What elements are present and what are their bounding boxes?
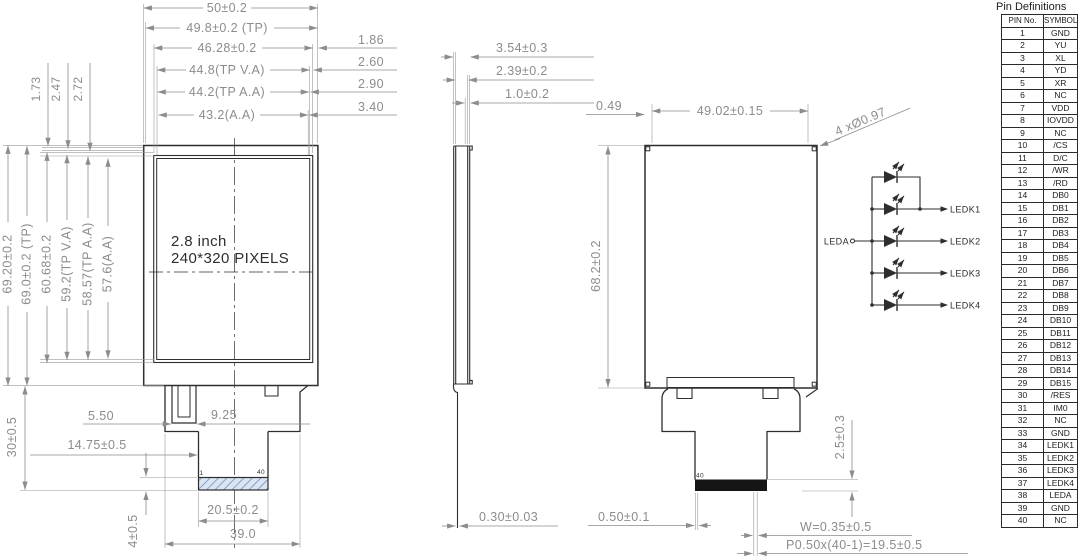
dim-tp-aa-height: 58.57(TP A.A) xyxy=(81,222,95,305)
table-row: 11D/C xyxy=(1002,152,1078,165)
back-pin40-marker: 40 xyxy=(696,473,704,480)
dim-contact-exposed: 2.5±0.3 xyxy=(833,415,847,459)
dim-top-thickness: 1.0±0.2 xyxy=(505,87,549,101)
front-dims-top: 50±0.2 49.8±0.2 (TP) 46.28±0.2 44.8(TP V… xyxy=(144,1,397,155)
dim-slot: 5.50 xyxy=(88,409,114,423)
table-row: 36LEDK3 xyxy=(1002,465,1078,478)
table-row: 22DB8 xyxy=(1002,290,1078,303)
table-row: 3XL xyxy=(1002,52,1078,65)
table-row: 12/WR xyxy=(1002,165,1078,178)
dim-back-height: 68.2±0.2 xyxy=(589,240,603,292)
table-row: 26DB12 xyxy=(1002,340,1078,353)
dim-tab: 9.25 xyxy=(211,408,237,422)
led-row-k3: LEDK3 xyxy=(872,258,981,279)
dim-tp-width: 49.8±0.2 (TP) xyxy=(186,21,268,35)
dim-contact-height: 4±0.5 xyxy=(126,514,140,547)
dim-small-247: 2.47 xyxy=(49,77,63,102)
table-row: 13/RD xyxy=(1002,177,1078,190)
pin-table-header-row: PIN No. SYMBOL xyxy=(1002,15,1078,28)
table-row: 6NC xyxy=(1002,90,1078,103)
table-row: 9NC xyxy=(1002,127,1078,140)
fpc-notch xyxy=(265,386,278,397)
table-row: 29DB15 xyxy=(1002,377,1078,390)
table-row: 19DB5 xyxy=(1002,252,1078,265)
screen-size-label: 2.8 inch xyxy=(171,233,227,250)
table-row: 37LEDK4 xyxy=(1002,477,1078,490)
side-fpc-line xyxy=(453,384,457,528)
leda-label: LEDA xyxy=(824,237,849,247)
table-row: 10/CS xyxy=(1002,140,1078,153)
dim-mid-thickness: 2.39±0.2 xyxy=(496,64,548,78)
symbol-header: SYMBOL xyxy=(1044,15,1078,28)
pin40-marker: 40 xyxy=(257,469,265,476)
table-row: 1GND xyxy=(1002,27,1078,40)
table-row: 27DB13 xyxy=(1002,352,1078,365)
led-row-k1: LEDK1 xyxy=(872,194,981,215)
backlight-bar xyxy=(667,378,794,388)
dim-gap-290: 2.90 xyxy=(358,77,384,91)
ledk1-label: LEDK1 xyxy=(950,205,981,215)
dim-pin-width: W=0.35±0.5 xyxy=(800,520,872,534)
screen-resolution-label: 240*320 PIXELS xyxy=(171,250,289,267)
led-row-k2: LEDK2 xyxy=(872,226,981,247)
dim-contact-width: 20.5±0.2 xyxy=(207,503,259,517)
table-row: 2YU xyxy=(1002,40,1078,53)
dim-small-173: 1.73 xyxy=(29,77,43,102)
ledk3-label: LEDK3 xyxy=(950,269,981,279)
led-diode xyxy=(872,162,920,209)
back-outline xyxy=(645,146,817,389)
table-row: 34LEDK1 xyxy=(1002,440,1078,453)
table-row: 8IOVDD xyxy=(1002,115,1078,128)
ledk-arrow xyxy=(941,270,949,275)
lcd-drawing-sheet: 2.8 inch 240*320 PIXELS 1 40 50±0.2 49.8… xyxy=(0,0,1080,560)
front-fpc-tail: 1 40 xyxy=(165,386,308,491)
dim-overall-height: 69.20±0.2 xyxy=(1,234,15,293)
dim-tp-aa-width: 44.2(TP A.A) xyxy=(189,85,265,99)
dim-total-thickness: 3.54±0.3 xyxy=(496,41,548,55)
ledk4-label: LEDK4 xyxy=(950,301,981,311)
dim-tail-height: 30±0.5 xyxy=(5,417,19,458)
ledk-arrow xyxy=(941,206,949,211)
table-row: 40NC xyxy=(1002,515,1078,528)
table-row: 20DB6 xyxy=(1002,265,1078,278)
mounting-holes xyxy=(646,147,816,386)
table-row: 21DB7 xyxy=(1002,277,1078,290)
dim-aa-height: 57.6(A.A) xyxy=(101,236,115,292)
table-row: 35LEDK2 xyxy=(1002,452,1078,465)
pin-no-header: PIN No. xyxy=(1002,15,1044,28)
dim-fpc-thickness: 0.30±0.03 xyxy=(479,510,538,524)
dim-tp-va-width: 44.8(TP V.A) xyxy=(189,63,265,77)
led-rows: LEDK1 LEDK2 LEDK3 xyxy=(872,194,981,311)
pin-table: PIN No. SYMBOL 1GND2YU3XL4YD5XR6NC7VDD8I… xyxy=(1001,14,1078,528)
table-row: 39GND xyxy=(1002,502,1078,515)
table-row: 17DB3 xyxy=(1002,227,1078,240)
pin-definitions-panel: Pin Definitions PIN No. SYMBOL 1GND2YU3X… xyxy=(994,1,1080,528)
pin-table-title: Pin Definitions xyxy=(996,1,1080,13)
technical-drawing: 2.8 inch 240*320 PIXELS 1 40 50±0.2 49.8… xyxy=(0,0,994,560)
table-row: 15DB1 xyxy=(1002,202,1078,215)
back-fpc-tail xyxy=(662,388,818,491)
ledk-arrow xyxy=(941,302,949,307)
dim-tp-va-height: 59.2(TP V.A) xyxy=(60,226,74,302)
ledk2-label: LEDK2 xyxy=(950,237,981,247)
junction-dots xyxy=(870,207,922,307)
leda-terminal xyxy=(851,239,855,243)
dim-pitch: P0.50x(40-1)=19.5±0.5 xyxy=(786,538,923,552)
side-view: 3.54±0.3 2.39±0.2 1.0±0.2 0.30±0.03 xyxy=(441,41,594,528)
holes-note: 4 xØ0.97 xyxy=(833,105,888,139)
back-view: 40 68.2±0.2 0.49 49.02±0.15 4 xØ0.97 2.5… xyxy=(586,95,968,556)
fpc-slot-inner xyxy=(178,386,190,418)
front-dims-left: 69.20±0.2 69.0±0.2 (TP) 60.68±0.2 59.2(T… xyxy=(1,63,165,386)
table-row: 30/RES xyxy=(1002,390,1078,403)
table-row: 24DB10 xyxy=(1002,315,1078,328)
table-row: 4YD xyxy=(1002,65,1078,78)
table-row: 33GND xyxy=(1002,427,1078,440)
front-dims-bottom: 30±0.5 5.50 9.25 14.75±0.5 4±0.5 20.5±0.… xyxy=(5,386,310,548)
dim-pin-offset: 0.50±0.1 xyxy=(598,510,650,524)
dim-6068-height: 60.68±0.2 xyxy=(40,234,54,293)
dim-hole-offset: 0.49 xyxy=(596,99,622,113)
led-backlight-circuit: LEDA LEDK1 xyxy=(824,162,981,311)
table-row: 16DB2 xyxy=(1002,215,1078,228)
dim-small-272: 2.72 xyxy=(71,77,85,102)
led-row-k4: LEDK4 xyxy=(872,290,981,311)
table-row: 28DB14 xyxy=(1002,365,1078,378)
table-row: 38LEDA xyxy=(1002,490,1078,503)
dim-4628-width: 46.28±0.2 xyxy=(197,41,256,55)
table-row: 31IM0 xyxy=(1002,402,1078,415)
fpc-contact-strip xyxy=(199,478,269,491)
pin1-marker: 1 xyxy=(200,470,204,477)
dim-hole-pitch: 49.02±0.15 xyxy=(697,104,763,118)
dim-overall-width: 50±0.2 xyxy=(207,1,248,15)
ledk-arrow xyxy=(941,238,949,243)
dim-aa-width: 43.2(A.A) xyxy=(199,108,255,122)
table-row: 14DB0 xyxy=(1002,190,1078,203)
dim-gap-186: 1.86 xyxy=(358,33,384,47)
table-row: 18DB4 xyxy=(1002,240,1078,253)
dim-gap-340: 3.40 xyxy=(358,100,384,114)
front-view: 2.8 inch 240*320 PIXELS 1 40 xyxy=(144,138,318,548)
holes-note-group: 4 xØ0.97 xyxy=(829,95,910,140)
table-row: 5XR xyxy=(1002,77,1078,90)
dim-gap-260: 2.60 xyxy=(358,55,384,69)
table-row: 7VDD xyxy=(1002,102,1078,115)
table-row: 25DB11 xyxy=(1002,327,1078,340)
pin-table-body: 1GND2YU3XL4YD5XR6NC7VDD8IOVDD9NC10/CS11D… xyxy=(1002,27,1078,527)
dim-tail-width: 39.0 xyxy=(230,527,256,541)
dim-tp-height: 69.0±0.2 (TP) xyxy=(20,223,34,305)
table-row: 32NC xyxy=(1002,415,1078,428)
table-row: 23DB9 xyxy=(1002,302,1078,315)
dim-tail-offset: 14.75±0.5 xyxy=(67,438,126,452)
back-contact-block xyxy=(695,480,767,492)
